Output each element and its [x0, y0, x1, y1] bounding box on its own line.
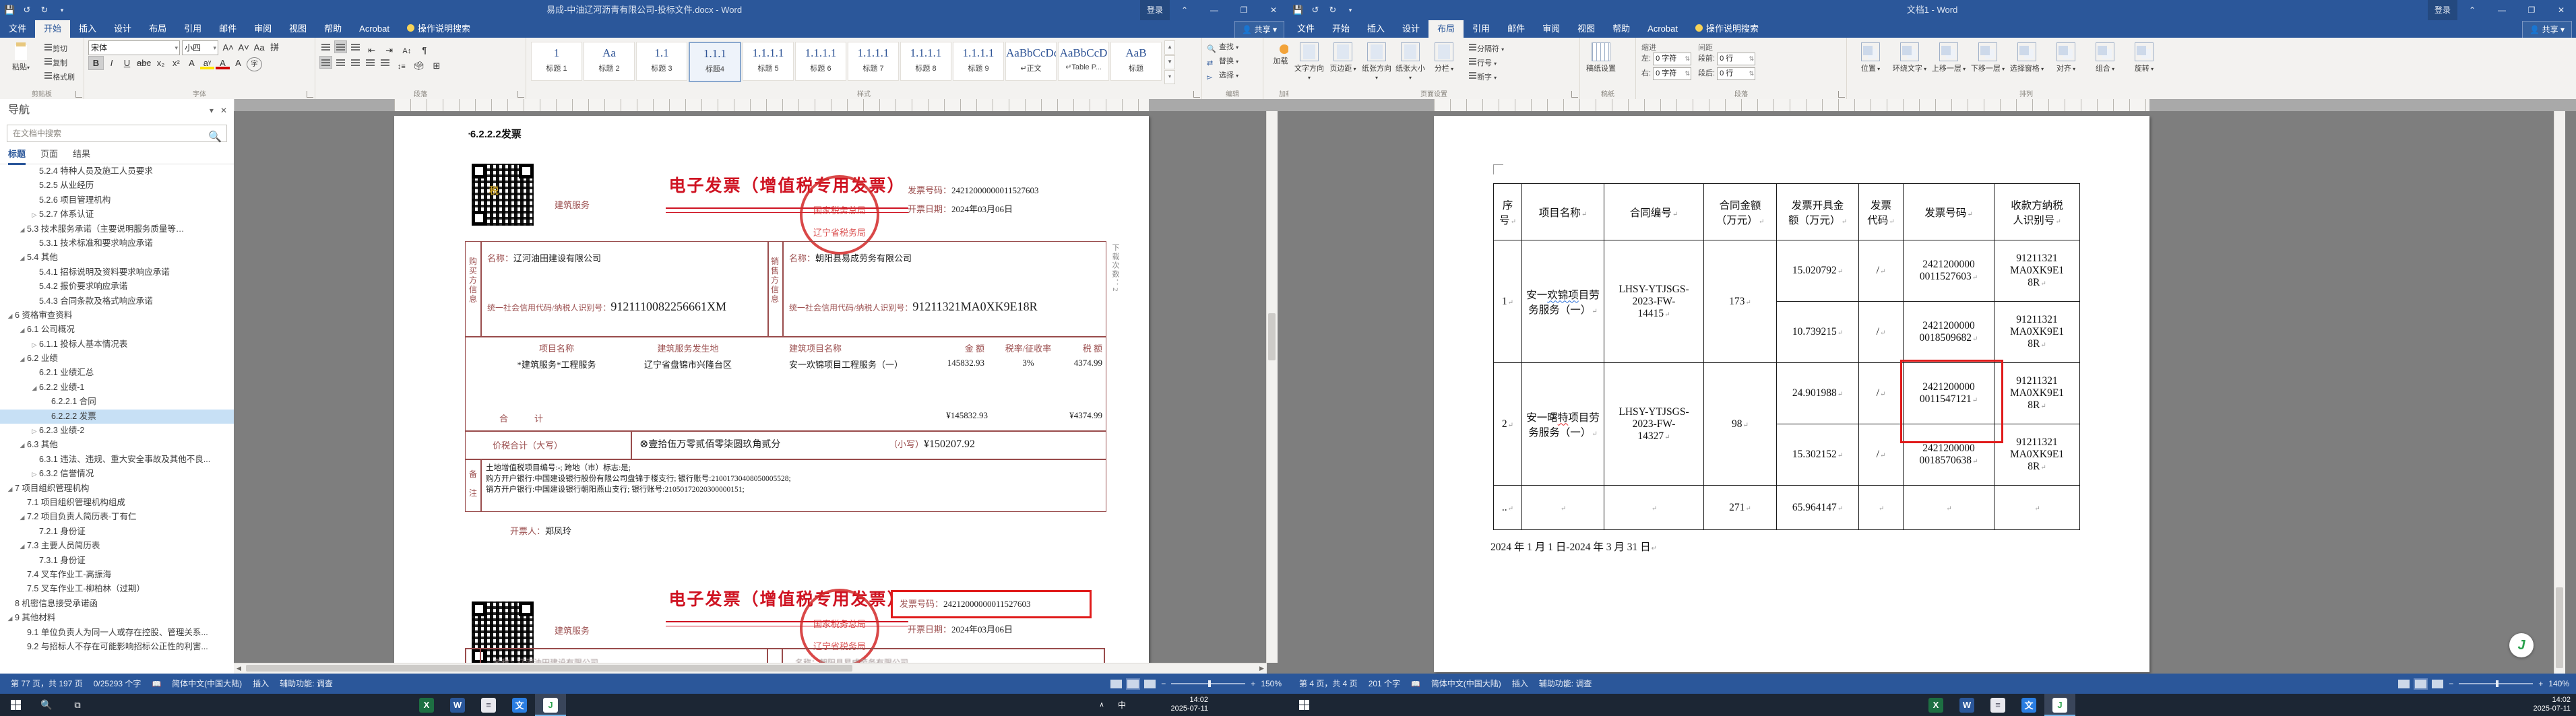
select-button[interactable]: ▻选择 ▾	[1206, 69, 1238, 83]
invoice-col-0: *建筑服务*工程服务	[493, 358, 621, 370]
font-size-combo[interactable]: 小四	[182, 40, 218, 55]
invoice-number-line: 发票号码：24212000000011527603	[908, 183, 1039, 196]
tab-邮件[interactable]: 邮件	[210, 20, 245, 38]
nav-item[interactable]: 5.3.1 技术标准和要求响应承诺	[0, 236, 234, 251]
decrease-indent-icon[interactable]: ⇤	[365, 44, 379, 57]
print-layout-icon[interactable]	[1127, 680, 1139, 688]
tab-tell-me[interactable]: 操作说明搜索	[398, 20, 479, 38]
arrange-环绕文字-button[interactable]: 环绕文字 ▾	[1890, 40, 1929, 73]
nav-item[interactable]: 7.2.1 身份证	[0, 525, 234, 539]
nav-item-label: 6.2.2 业绩-1	[39, 383, 84, 392]
total-cell	[1904, 486, 1994, 530]
arrange-组合-button[interactable]: 组合 ▾	[2085, 40, 2125, 73]
bold-icon[interactable]: B	[89, 57, 103, 69]
minimize-button[interactable]: —	[2487, 0, 2517, 20]
enclose-char-icon[interactable]: 字	[247, 57, 262, 71]
tab-Acrobat[interactable]: Acrobat	[1639, 20, 1687, 38]
pagesetup-行号-button[interactable]: 行号 ▾	[1467, 55, 1504, 69]
style-标题 3[interactable]: 1.1标题 3	[636, 42, 687, 81]
lightbulb-icon	[407, 24, 414, 32]
replace-button[interactable]: ⇄替换 ▾	[1206, 55, 1238, 69]
signin-button[interactable]: 登录	[1140, 0, 1170, 20]
nav-item-label: 7.1 项目组织管理机构组成	[27, 498, 125, 507]
qat-customize-arrow-icon[interactable]: ▾	[57, 5, 67, 15]
位置-icon	[1861, 42, 1880, 61]
ribbon-options-icon[interactable]: ⌃	[2457, 0, 2487, 20]
start-button[interactable]	[1288, 694, 1319, 716]
nav-tab-标题[interactable]: 标题	[8, 145, 26, 165]
phonetic-guide-icon[interactable]: 拼	[268, 41, 282, 54]
style-标题 2[interactable]: Aa标题 2	[584, 42, 635, 81]
assistant-float-button[interactable]: J	[2509, 633, 2534, 657]
nav-item[interactable]: ▷6.2.3 业绩-2	[0, 424, 234, 438]
arrange-对齐-button[interactable]: 对齐 ▾	[2046, 40, 2085, 73]
zoom-in-icon[interactable]: +	[2538, 674, 2543, 694]
zoom-slider[interactable]	[2459, 683, 2533, 684]
print-layout-icon[interactable]	[2415, 680, 2426, 688]
restore-button[interactable]: ❐	[2517, 0, 2546, 20]
editing-group: 🔍查找 ▾⇄替换 ▾▻选择 ▾ 编辑	[1202, 38, 1263, 99]
remark-side-label: 备注	[466, 469, 480, 498]
tray-chevron-icon[interactable]: ∧	[1092, 694, 1112, 716]
chevron-down-icon: ▾	[2071, 66, 2075, 72]
signin-button[interactable]: 登录	[2428, 0, 2457, 20]
nav-item[interactable]: ◢6.2 业绩	[0, 352, 234, 366]
addins-button[interactable]: 加载项	[1267, 40, 1288, 66]
cell-invoice-amount: 15.020792	[1777, 240, 1859, 302]
clipboard-group: 粘贴▾ 剪切复制格式刷 剪贴板	[0, 38, 84, 99]
web-layout-icon[interactable]	[1144, 680, 1156, 688]
pagesetup-分隔符-button[interactable]: 分隔符 ▾	[1467, 40, 1504, 55]
superscript-icon[interactable]: x²	[169, 57, 183, 69]
clock-left[interactable]: 14:022025-07-11	[1137, 694, 1208, 716]
style-↵Table P...[interactable]: AaBbCcD↵Table P...	[1058, 42, 1109, 81]
nav-item[interactable]: ▷6.3.2 信誉情况	[0, 467, 234, 481]
search-icon[interactable]: 🔍	[208, 130, 222, 143]
collapse-arrow-icon[interactable]: ◢	[5, 482, 15, 496]
page-indicator[interactable]: 第 77 页，共 197 页	[11, 674, 83, 694]
horizontal-ruler[interactable]	[1288, 99, 2576, 111]
tab-帮助[interactable]: 帮助	[315, 20, 350, 38]
nav-item[interactable]: ◢6.3 其他	[0, 438, 234, 452]
nav-item[interactable]: 6.2.2.2 发票	[0, 410, 234, 424]
share-button[interactable]: 👤 共享 ▾	[1234, 21, 1284, 38]
taskbar-app-excel[interactable]: X	[1920, 694, 1951, 716]
share-button[interactable]: 👤 共享 ▾	[2522, 21, 2572, 38]
pagesetup-纸张大小-button[interactable]: 纸张大小 ▾	[1393, 40, 1427, 82]
taskbar-app-translate[interactable]: 文	[504, 694, 535, 716]
nav-chevron-icon[interactable]: ▾	[210, 99, 214, 122]
taskbar-app-green-app[interactable]: J	[2044, 694, 2075, 716]
restore-button[interactable]: ❐	[1229, 0, 1259, 20]
vertical-scrollbar[interactable]	[1266, 111, 1278, 663]
style-标题4[interactable]: 1.1.1标题4	[689, 42, 741, 82]
horizontal-scrollbar[interactable]: ◀ ▶	[234, 663, 1267, 674]
tab-开始[interactable]: 开始	[35, 20, 70, 38]
nav-item[interactable]: ▷5.2.7 体系认证	[0, 207, 234, 222]
zoom-in-icon[interactable]: +	[1251, 674, 1255, 694]
nav-item[interactable]: 7.4 叉车作业工-高振海	[0, 568, 234, 582]
page-indicator[interactable]: 第 4 页，共 4 页	[1299, 674, 1358, 694]
proofing-icon[interactable]: 📖	[1411, 674, 1420, 694]
style-↵正文[interactable]: AaBbCcDdE↵正文	[1005, 42, 1057, 81]
search-button[interactable]: 🔍	[31, 694, 62, 716]
arrange-上移一层-button[interactable]: 上移一层 ▾	[1929, 40, 1968, 73]
expand-arrow-icon[interactable]: ▷	[30, 424, 39, 438]
tab-审阅[interactable]: 审阅	[245, 20, 280, 38]
grow-font-icon[interactable]: A˄	[221, 41, 235, 54]
collapse-arrow-icon[interactable]: ◢	[18, 511, 27, 524]
qr-code: 税	[472, 164, 534, 226]
zoom-level[interactable]: 150%	[1261, 674, 1282, 694]
tab-引用[interactable]: 引用	[1464, 20, 1499, 38]
nav-item[interactable]: 5.4.2 报价要求响应承诺	[0, 280, 234, 294]
char-shading-icon[interactable]: A	[231, 57, 245, 69]
arrange-旋转-button[interactable]: 旋转 ▾	[2125, 40, 2164, 73]
nav-item[interactable]: 9.2 与招标人不存在可能影响招标公正性的利害...	[0, 640, 234, 654]
arrange-下移一层-button[interactable]: 下移一层 ▾	[1968, 40, 2007, 73]
paste-button[interactable]: 粘贴▾	[4, 40, 38, 72]
nav-item[interactable]: 5.2.5 从业经历	[0, 178, 234, 193]
ime-indicator[interactable]: 中	[1112, 694, 1132, 716]
cell-contract: LHSY-YTJSGS- 2023-FW- 14327	[1604, 363, 1704, 486]
chevron-down-icon: ▾	[1375, 75, 1378, 81]
nav-item[interactable]: ◢6 资格审查资料	[0, 308, 234, 323]
arrange-选择窗格-button[interactable]: 选择窗格 ▾	[2007, 40, 2046, 73]
nav-item-label: 5.3 技术服务承诺（主要说明服务质量等…	[27, 224, 184, 234]
tab-tell-me[interactable]: 操作说明搜索	[1687, 20, 1767, 38]
windows-logo-icon	[1299, 700, 1309, 710]
tab-视图[interactable]: 视图	[1569, 20, 1604, 38]
clipboard-dialog-launcher[interactable]	[75, 91, 82, 98]
highlight-invoice-number-box: 发票号码：24212000000011527603	[891, 590, 1092, 618]
document-canvas-left: ▪6.2.2.2发票 税 建筑服务 电子发票（增值税专用发票） 国家税务总局 辽…	[234, 111, 1278, 674]
web-layout-icon[interactable]	[2432, 680, 2443, 688]
collapse-arrow-icon[interactable]: ◢	[18, 438, 27, 452]
nav-item[interactable]: 5.2.6 项目管理机构	[0, 193, 234, 207]
table-header-cell: 合同金额 （万元）	[1704, 184, 1777, 240]
style-标题 1[interactable]: 1标题 1	[531, 42, 582, 81]
scroll-right-arrow-icon[interactable]: ▶	[1257, 663, 1267, 674]
分栏-icon	[1435, 42, 1453, 61]
chevron-down-icon: ▾	[1961, 66, 1966, 72]
styles-dialog-launcher[interactable]	[1193, 91, 1200, 98]
strikethrough-icon[interactable]: abc	[135, 57, 152, 69]
document-page[interactable]: 序 号项目名称合同编号合同金额 （万元）发票开具金 额（万元）发票 代码发票号码…	[1434, 116, 2149, 672]
nav-item[interactable]: 5.4.1 招标说明及资料要求响应承诺	[0, 265, 234, 280]
multilevel-list-icon[interactable]	[350, 41, 361, 53]
close-button[interactable]: ✕	[2546, 0, 2576, 20]
read-mode-icon[interactable]	[2398, 680, 2410, 688]
align-left-icon[interactable]	[320, 57, 332, 68]
nav-item[interactable]: ◢6.2.2 业绩-1	[0, 381, 234, 395]
read-mode-icon[interactable]	[1110, 680, 1122, 688]
tab-布局[interactable]: 布局	[1428, 20, 1464, 38]
nav-item[interactable]: 7.1 项目组织管理机构组成	[0, 496, 234, 510]
tab-审阅[interactable]: 审阅	[1534, 20, 1569, 38]
arrange-group: 位置 ▾环绕文字 ▾上移一层 ▾下移一层 ▾选择窗格 ▾对齐 ▾组合 ▾旋转 ▾…	[1847, 38, 2205, 99]
ribbon-options-icon[interactable]: ⌃	[1170, 0, 1199, 20]
nav-item-label: 9 其他材料	[15, 613, 55, 622]
nav-item[interactable]: 7.3.1 身份证	[0, 554, 234, 568]
nav-item-label: 6.2 业绩	[27, 354, 58, 363]
clipboard-剪切-button[interactable]: 剪切	[42, 40, 75, 55]
shrink-font-icon[interactable]: A˅	[237, 41, 251, 54]
选择窗格-icon	[2017, 42, 2036, 61]
tab-插入[interactable]: 插入	[1358, 20, 1393, 38]
tab-设计[interactable]: 设计	[105, 20, 140, 38]
taskbar-app-word[interactable]: W	[442, 694, 473, 716]
clipboard-格式刷-button[interactable]: 格式刷	[42, 69, 75, 83]
undo-icon[interactable]: ↺	[22, 5, 32, 15]
change-case-icon[interactable]: Aa	[252, 41, 266, 54]
save-icon[interactable]: 💾	[1292, 5, 1303, 15]
ribbon-tab-row: 文件开始插入设计布局引用邮件审阅视图帮助Acrobat操作说明搜索👤 共享 ▾	[0, 20, 1288, 38]
underline-icon[interactable]: U	[120, 57, 134, 69]
word-window-left: 💾 ↺ ↻ ▾ 易成-中油辽河沥青有限公司-投标文件.docx - Word 登…	[0, 0, 1288, 694]
find-button[interactable]: 🔍查找 ▾	[1206, 40, 1238, 55]
clock-right[interactable]: 14:022025-07-11	[2503, 694, 2571, 716]
nav-item-label: 6.3.1 违法、违规、重大安全事故及其他不良...	[39, 455, 210, 464]
nav-item[interactable]: ◢7.2 项目负责人简历表-丁有仁	[0, 510, 234, 524]
spinner-间距-段后:[interactable]: 0 行	[1717, 67, 1755, 80]
line-spacing-icon[interactable]: ↕≡	[394, 61, 408, 73]
font-color-icon[interactable]: A	[216, 57, 230, 69]
nav-item[interactable]: 6.2.1 业绩汇总	[0, 366, 234, 380]
spinner-缩进-右:[interactable]: 0 字符	[1653, 67, 1691, 80]
页边距-icon	[1333, 42, 1352, 61]
style-标题 6[interactable]: 1.1.1.1标题 6	[795, 42, 846, 81]
nav-item[interactable]: ▷6.1.1 投标人基本情况表	[0, 337, 234, 352]
spinner-缩进-左:[interactable]: 0 字符	[1653, 53, 1691, 65]
clipboard-复制-button[interactable]: 复制	[42, 55, 75, 69]
taskbar-app-notepad[interactable]: ≡	[473, 694, 504, 716]
total-cell: 65.964147	[1777, 486, 1859, 530]
tab-文件[interactable]: 文件	[1288, 20, 1323, 38]
style-标题 9[interactable]: 1.1.1.1标题 9	[953, 42, 1004, 81]
invoice-col-1: 辽宁省盘锦市兴隆台区	[621, 358, 755, 370]
style-标题 7[interactable]: 1.1.1.1标题 7	[848, 42, 899, 81]
table-header-cell: 项目名称	[1522, 184, 1604, 240]
horizontal-ruler[interactable]	[234, 99, 1288, 111]
分隔符-icon	[1468, 41, 1476, 53]
nav-item[interactable]: ◢9 其他材料	[0, 611, 234, 625]
tab-开始[interactable]: 开始	[1323, 20, 1358, 38]
pagesetup-文字方向-button[interactable]: 文字方向 ▾	[1292, 40, 1326, 82]
italic-icon[interactable]: I	[104, 57, 119, 69]
zoom-out-icon[interactable]: −	[1161, 674, 1166, 694]
collapse-arrow-icon[interactable]: ◢	[18, 352, 27, 366]
taskbar-app-green-app[interactable]: J	[535, 694, 566, 716]
close-button[interactable]: ✕	[1259, 0, 1288, 20]
task-view-button[interactable]: ⧉	[62, 694, 93, 716]
nav-item[interactable]: 5.4.3 合同条款及格式响应承诺	[0, 294, 234, 308]
show-marks-icon[interactable]: ¶	[417, 44, 431, 57]
qat-customize-arrow-icon[interactable]: ▾	[1345, 5, 1356, 15]
numbering-icon[interactable]	[335, 41, 346, 53]
undo-icon[interactable]: ↺	[1310, 5, 1321, 15]
collapse-arrow-icon[interactable]: ◢	[18, 540, 27, 553]
collapse-arrow-icon[interactable]: ◢	[18, 223, 27, 236]
insert-mode[interactable]: 插入	[253, 674, 269, 694]
纸张方向-icon	[1367, 42, 1386, 61]
collapse-arrow-icon[interactable]: ◢	[5, 612, 15, 625]
tab-邮件[interactable]: 邮件	[1499, 20, 1534, 38]
nav-item[interactable]: ◢6.1 公司概况	[0, 323, 234, 337]
word-count[interactable]: 0/25293 个字	[94, 674, 142, 694]
chevron-down-icon: ▾	[1494, 75, 1497, 81]
tab-视图[interactable]: 视图	[280, 20, 315, 38]
notepad-icon: ≡	[481, 698, 496, 713]
nav-item[interactable]: 8 机密信息接受承诺函	[0, 597, 234, 611]
margin-crop-mark	[1493, 164, 1503, 174]
nav-item[interactable]: ◢5.4 其他	[0, 251, 234, 265]
cell-invoice-number: 2421200000 0011527603	[1904, 240, 1994, 302]
vertical-scrollbar[interactable]	[2554, 111, 2565, 674]
borders-icon[interactable]: ⊞	[429, 59, 443, 72]
collapse-arrow-icon[interactable]: ◢	[18, 251, 27, 265]
justify-icon[interactable]	[365, 57, 376, 68]
doc-heading: ▪6.2.2.2发票	[468, 127, 522, 141]
style-标题[interactable]: AaB标题	[1110, 42, 1162, 81]
styles-gallery-arrows[interactable]: ▲▼▾	[1164, 40, 1175, 85]
distribute-icon[interactable]	[379, 57, 391, 68]
nav-item[interactable]: ◢7.3 主要人员简历表	[0, 539, 234, 553]
font-name-combo[interactable]: 宋体	[88, 40, 180, 55]
tab-引用[interactable]: 引用	[175, 20, 210, 38]
highlight-color-icon[interactable]: aᵞ	[200, 57, 214, 69]
cell-invoice-code: /	[1859, 424, 1904, 486]
minimize-button[interactable]: —	[1199, 0, 1229, 20]
word-icon: W	[450, 698, 465, 713]
shading-icon[interactable]: 🗳	[412, 59, 426, 72]
copy-icon	[43, 55, 52, 67]
invoice-col-3: 金 额	[870, 341, 984, 354]
style-标题 8[interactable]: 1.1.1.1标题 8	[900, 42, 951, 81]
nav-item[interactable]: ◢5.3 技术服务承诺（主要说明服务质量等…	[0, 222, 234, 236]
tab-设计[interactable]: 设计	[1393, 20, 1428, 38]
taskbar-app-translate[interactable]: 文	[2013, 694, 2044, 716]
align-center-icon[interactable]	[335, 57, 346, 68]
collapse-arrow-icon[interactable]: ◢	[5, 309, 15, 323]
addins-icon	[1280, 44, 1288, 54]
start-button[interactable]	[0, 694, 31, 716]
tab-插入[interactable]: 插入	[70, 20, 105, 38]
text-effects-icon[interactable]: A	[185, 57, 199, 69]
spinner-间距-段前:[interactable]: 0 行	[1717, 53, 1755, 65]
pagesetup-页边距-button[interactable]: 页边距 ▾	[1326, 40, 1360, 73]
document-page[interactable]: ▪6.2.2.2发票 税 建筑服务 电子发票（增值税专用发票） 国家税务总局 辽…	[394, 116, 1149, 672]
taskbar-app-word[interactable]: W	[1951, 694, 1982, 716]
invoice-col-5: 4374.99	[1025, 358, 1102, 368]
bullets-icon[interactable]	[320, 41, 332, 53]
tab-Acrobat[interactable]: Acrobat	[350, 20, 398, 38]
chevron-down-icon: ▾	[1501, 46, 1504, 53]
style-标题 5[interactable]: 1.1.1.1标题 5	[743, 42, 794, 81]
page-setup-dialog-launcher[interactable]	[1571, 91, 1578, 98]
下移一层-icon	[1978, 42, 1997, 61]
green-app-icon: J	[2052, 698, 2067, 713]
chevron-down-icon: ▾	[2040, 66, 2044, 72]
nav-item[interactable]: ◢7 项目组织管理机构	[0, 482, 234, 496]
nav-item[interactable]: 5.2.4 特种人员及施工人员要求	[0, 164, 234, 178]
cell-taxid: 91211321 MA0XK9E1 8R	[1994, 240, 2080, 302]
ribbon-home: 粘贴▾ 剪切复制格式刷 剪贴板 宋体 小四 A˄A˅Aa拼 BIUabcx₂x²…	[0, 38, 1288, 100]
increase-indent-icon[interactable]: ⇥	[382, 44, 396, 57]
nav-item[interactable]: 9.1 单位负责人为同一人或存在控股、管理关系...	[0, 626, 234, 640]
tab-布局[interactable]: 布局	[140, 20, 175, 38]
zoom-level[interactable]: 140%	[2548, 674, 2569, 694]
accessibility-status[interactable]: 辅助功能: 调查	[280, 674, 333, 694]
font-dialog-launcher[interactable]	[307, 91, 313, 98]
tab-帮助[interactable]: 帮助	[1604, 20, 1639, 38]
scroll-left-arrow-icon[interactable]: ◀	[234, 663, 244, 674]
tab-文件[interactable]: 文件	[0, 20, 35, 38]
zoom-out-icon[interactable]: −	[2449, 674, 2453, 694]
nav-item-label: 7.2 项目负责人简历表-丁有仁	[27, 512, 137, 521]
language-indicator[interactable]: 简体中文(中国大陆)	[1431, 674, 1501, 694]
language-indicator[interactable]: 简体中文(中国大陆)	[172, 674, 242, 694]
arrange-位置-button[interactable]: 位置 ▾	[1851, 40, 1890, 73]
proofing-icon[interactable]: 📖	[152, 674, 161, 694]
nav-item-label: 9.1 单位负责人为同一人或存在控股、管理关系...	[27, 628, 208, 637]
cell-contract: LHSY-YTJSGS- 2023-FW- 14415	[1604, 240, 1704, 363]
cell-invoice-code: /	[1859, 240, 1904, 302]
zoom-slider[interactable]	[1171, 683, 1245, 684]
collapse-arrow-icon[interactable]: ◢	[18, 323, 27, 337]
chevron-down-icon: ▾	[1236, 59, 1238, 65]
performance-table: 序 号项目名称合同编号合同金额 （万元）发票开具金 额（万元）发票 代码发票号码…	[1493, 183, 2080, 530]
taskbar-app-notepad[interactable]: ≡	[1982, 694, 2013, 716]
excel-icon: X	[1928, 698, 1943, 713]
nav-tab-结果[interactable]: 结果	[73, 145, 90, 163]
pagesetup-分栏-button[interactable]: 分栏 ▾	[1427, 40, 1461, 73]
accessibility-status[interactable]: 辅助功能: 调查	[1539, 674, 1592, 694]
expand-arrow-icon[interactable]: ▷	[30, 338, 39, 352]
layout-paragraph-group: 缩进左:0 字符右:0 字符间距段前:0 行段后:0 行 段落	[1636, 38, 1847, 99]
nav-item[interactable]: 6.3.1 违法、违规、重大安全事故及其他不良...	[0, 453, 234, 467]
nav-item-label: 7.5 叉车作业工-柳柏林（过期）	[27, 584, 145, 593]
insert-mode[interactable]: 插入	[1512, 674, 1528, 694]
nav-search-input[interactable]: 在文档中搜索	[7, 125, 227, 142]
layout-paragraph-dialog-launcher[interactable]	[1838, 91, 1845, 98]
chevron-down-icon: ▾	[1236, 44, 1238, 51]
nav-close-icon[interactable]: ✕	[220, 99, 227, 122]
paragraph-dialog-launcher[interactable]	[517, 91, 524, 98]
pagesetup-断字-button[interactable]: 断字 ▾	[1467, 69, 1504, 83]
expand-arrow-icon[interactable]: ▷	[30, 467, 39, 481]
align-right-icon[interactable]	[350, 57, 361, 68]
taskbar-app-excel[interactable]: X	[411, 694, 442, 716]
组合-icon	[2096, 42, 2114, 61]
paper-稿纸设置-button[interactable]: 稿纸设置	[1584, 40, 1618, 73]
window-title: 易成-中油辽河沥青有限公司-投标文件.docx - Word	[0, 0, 1288, 20]
subscript-icon[interactable]: x₂	[154, 57, 168, 69]
repeat-icon[interactable]: ↻	[1327, 5, 1338, 15]
nav-item[interactable]: 6.2.2.1 合同	[0, 395, 234, 409]
pagesetup-纸张方向-button[interactable]: 纸张方向 ▾	[1360, 40, 1393, 82]
nav-tab-页面[interactable]: 页面	[40, 145, 58, 163]
word-count[interactable]: 201 个字	[1369, 674, 1400, 694]
repeat-icon[interactable]: ↻	[39, 5, 50, 15]
nav-item[interactable]: 7.5 叉车作业工-柳柏林（过期）	[0, 582, 234, 596]
expand-arrow-icon[interactable]: ▷	[30, 208, 39, 222]
collapse-arrow-icon[interactable]: ◢	[30, 381, 39, 395]
save-icon[interactable]: 💾	[4, 5, 15, 15]
document-canvas-right: 序 号项目名称合同编号合同金额 （万元）发票开具金 额（万元）发票 代码发票号码…	[1288, 111, 2565, 674]
total-cell	[1859, 486, 1904, 530]
invoice-body: 购买方信息 销售方信息 名称：辽河油田建设有限公司 统一社会信用代码/纳税人识别…	[465, 241, 1106, 512]
